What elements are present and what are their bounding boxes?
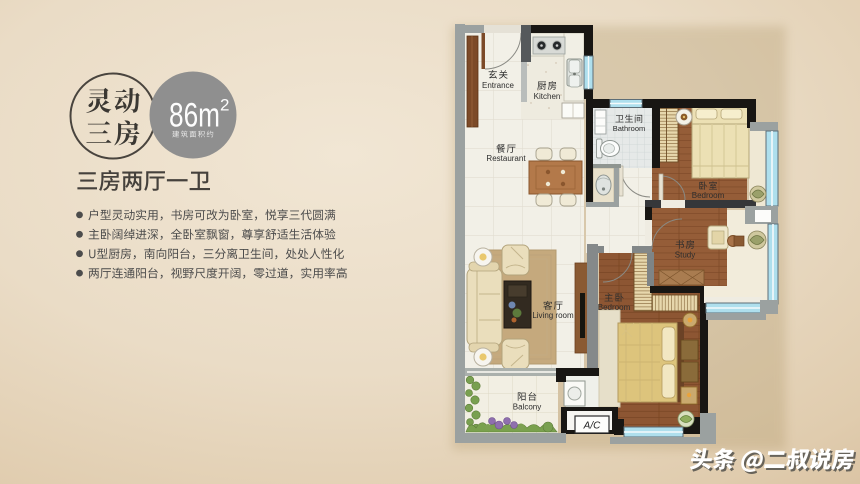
svg-text:Balcony: Balcony [513, 403, 541, 412]
svg-text:2: 2 [220, 96, 229, 115]
svg-text:A/C: A/C [583, 421, 601, 432]
svg-text:Bedroom: Bedroom [692, 191, 725, 200]
svg-text:Kitchen: Kitchen [534, 92, 561, 101]
svg-text:Bathroom: Bathroom [613, 124, 646, 133]
svg-text:Bedroom: Bedroom [598, 303, 631, 312]
svg-text:Entrance: Entrance [482, 81, 515, 90]
svg-text:Restaurant: Restaurant [486, 154, 526, 163]
svg-text:Study: Study [675, 251, 695, 260]
svg-text:86m: 86m [169, 97, 220, 135]
svg-text:Living room: Living room [532, 311, 574, 320]
